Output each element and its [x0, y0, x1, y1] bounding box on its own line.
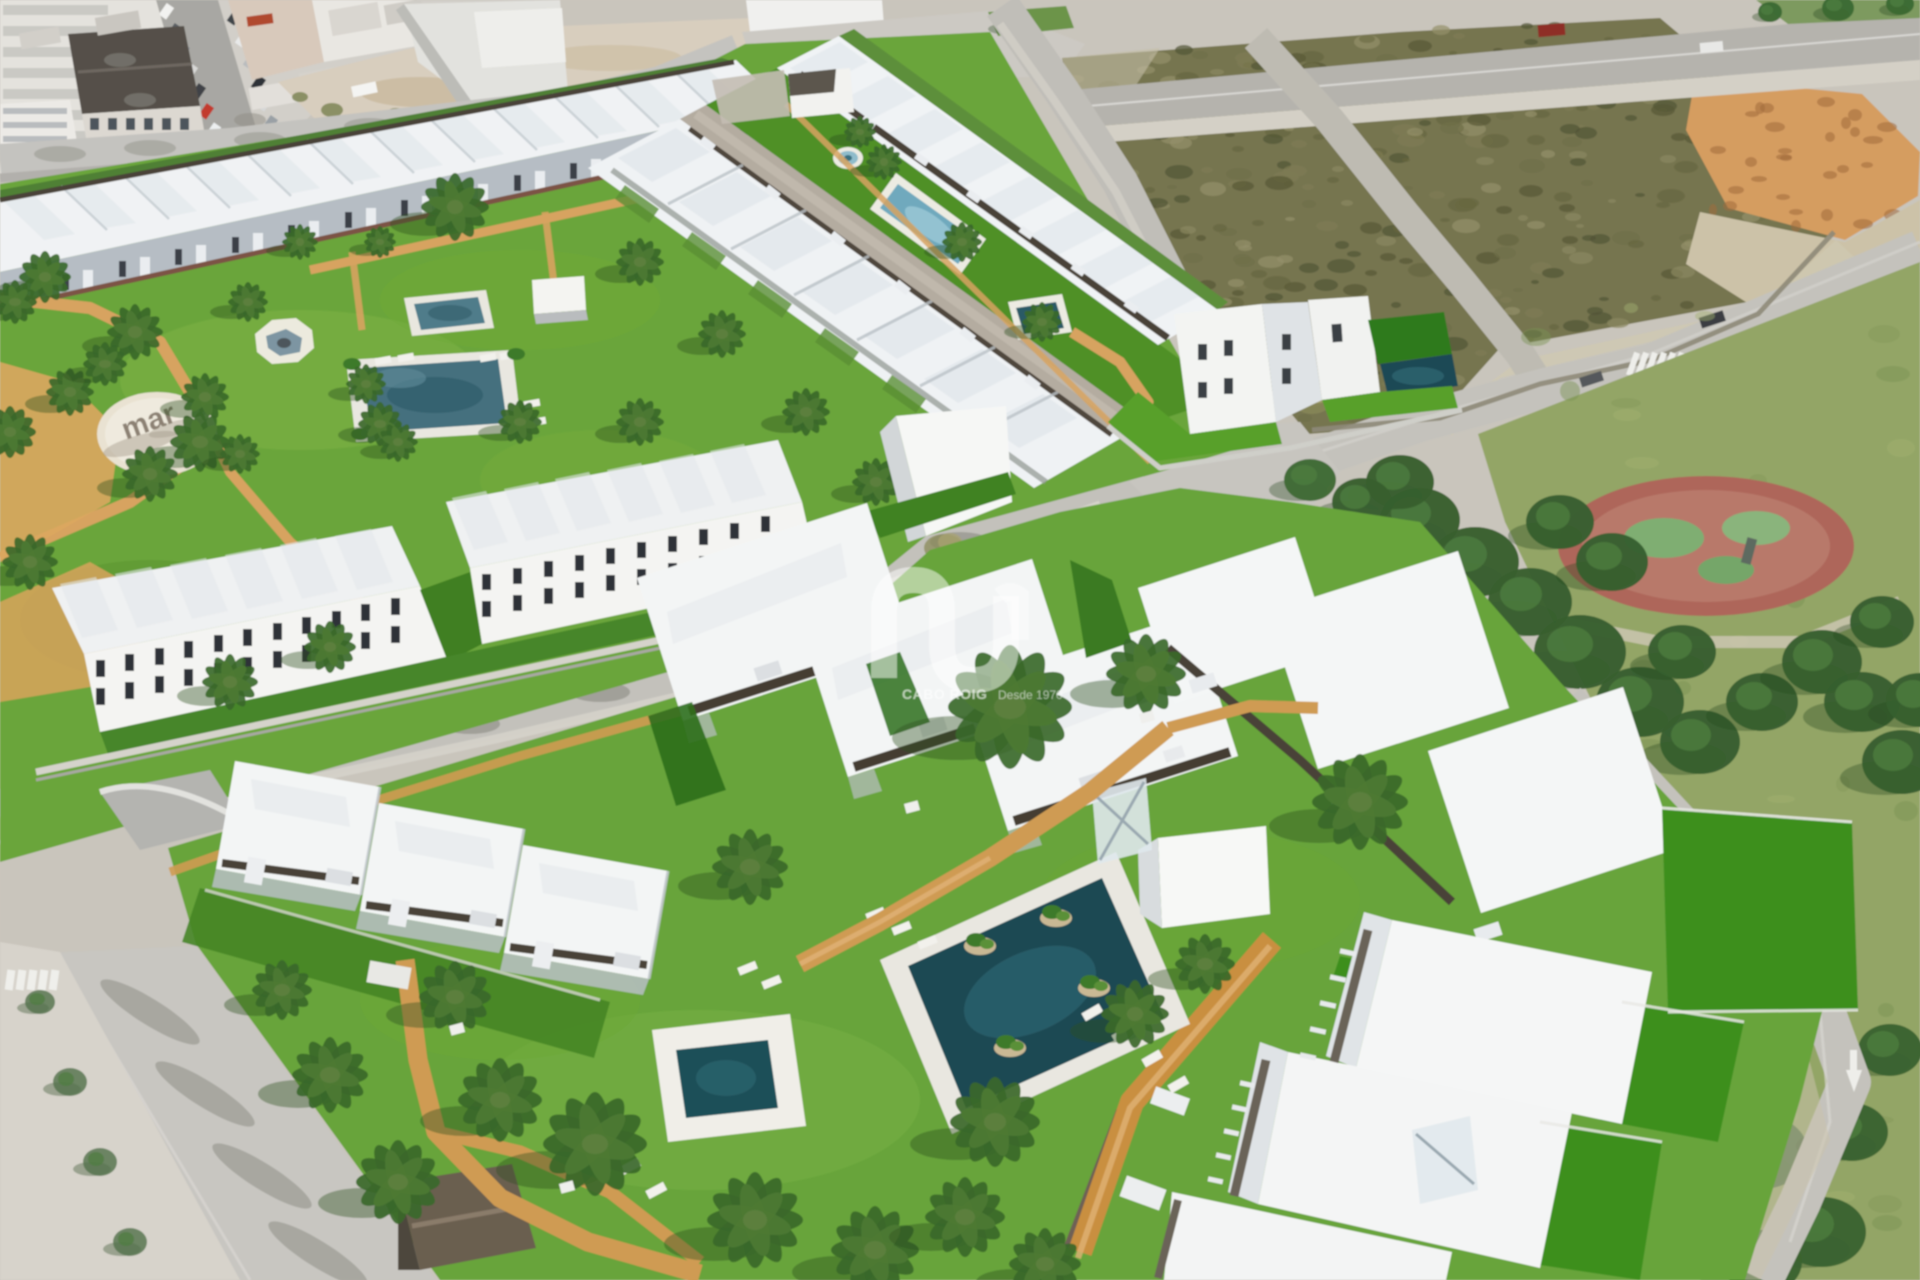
- svg-text:Desde 1970: Desde 1970: [998, 688, 1063, 702]
- svg-text:CABO ROIG: CABO ROIG: [902, 686, 987, 702]
